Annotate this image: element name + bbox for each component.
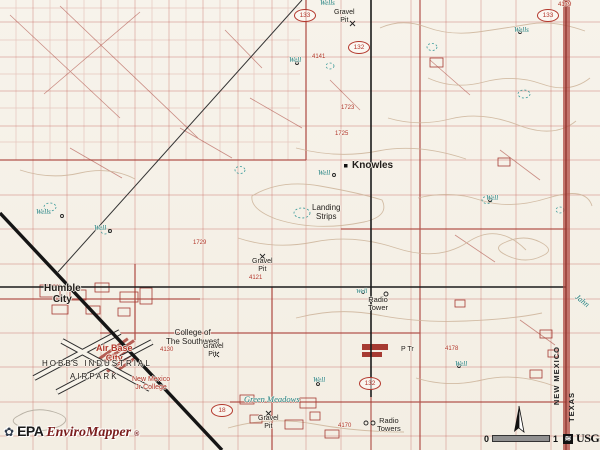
route-shield-18: 18 — [211, 404, 233, 417]
map-label-layer: WellsGravel PitWellWells4179414117231725… — [0, 0, 600, 450]
enviromapper-map-view[interactable]: WellsGravel PitWellWells4179414117231725… — [0, 0, 600, 450]
route-shield-133: 133 — [294, 9, 316, 22]
label-well: Well — [289, 57, 301, 65]
usgs-logo-text: USGS — [576, 431, 600, 446]
label-nm-jr-college: New Mexico Jr College — [132, 376, 170, 391]
label-spot-elevation: 1729 — [193, 240, 206, 246]
label-well: Well — [318, 170, 330, 178]
label-landing-strips: Landing Strips — [312, 204, 340, 221]
label-trailer-park: P Tr — [401, 346, 414, 354]
label-well: Well — [356, 288, 367, 295]
label-spot-elevation: 1725 — [335, 131, 348, 137]
label-green-meadows: Green Meadows — [244, 395, 300, 404]
label-well: Well — [313, 377, 325, 385]
label-well: Well — [455, 361, 467, 369]
state-line-label-texas: TEXAS — [567, 392, 576, 422]
label-spot-elevation: 4141 — [312, 54, 325, 60]
label-spot-elevation: 4178 — [445, 346, 458, 352]
label-jahn-draw: Jahn — [573, 293, 591, 309]
label-spot-elevation: 1723 — [341, 105, 354, 111]
enviromapper-logo-text: EnviroMapper — [46, 425, 131, 441]
route-shield-133: 133 — [537, 9, 559, 22]
label-spot-elevation: 4130 — [160, 347, 173, 353]
scale-one-label: 1 — [553, 434, 558, 444]
scale-zero-label: 0 — [484, 434, 489, 444]
state-line-label-new-mexico: NEW MEXICO — [552, 346, 561, 405]
usgs-logo-icon: ≋ — [563, 434, 573, 444]
label-gravel-pit: Gravel Pit — [258, 415, 279, 430]
scale-bar: 0 1 ≋ USGS — [484, 431, 600, 446]
route-shield-132: 132 — [348, 41, 370, 54]
label-radio-tower: Radio Tower — [368, 296, 388, 312]
label-gravel-pit: Gravel Pit — [334, 9, 355, 24]
scale-bar-line — [492, 435, 550, 442]
label-wells: Wells — [36, 209, 51, 217]
epa-logo-text: EPA — [17, 423, 43, 439]
label-wells: Wells — [514, 27, 529, 35]
epa-seal-icon: ✿ — [4, 425, 14, 439]
label-spot-elevation: 4121 — [249, 275, 262, 281]
label-humble-city: Humble City — [44, 284, 81, 306]
attribution-logo: ✿ EPA EnviroMapper® — [4, 423, 139, 441]
label-well: Well — [486, 195, 498, 203]
label-hobbs-industrial: HOBBS INDUSTRIAL — [42, 360, 152, 369]
label-well: Well — [94, 225, 106, 233]
label-wells: Wells — [320, 0, 335, 8]
label-gravel-pit: Gravel Pit. — [203, 343, 224, 358]
registered-mark: ® — [134, 431, 139, 438]
label-gravel-pit: Gravel Pit — [252, 258, 273, 273]
label-radio-towers: Radio Towers — [377, 417, 401, 433]
label-airpark: AIRPARK — [70, 373, 119, 382]
label-knowles: Knowles — [352, 161, 393, 172]
label-spot-elevation: 4170 — [338, 423, 351, 429]
route-shield-132: 132 — [359, 377, 381, 390]
label-spot-elevation: 4179 — [558, 2, 571, 8]
